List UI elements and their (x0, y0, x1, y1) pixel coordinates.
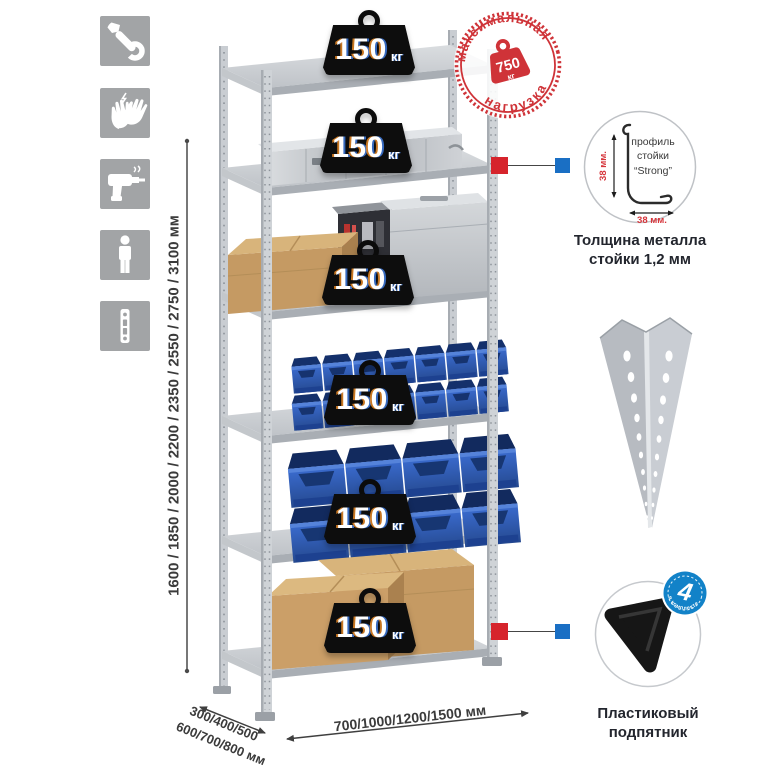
foot-caption: Пластиковый подпятник (582, 704, 714, 742)
shelf-load-badge: 150кг (324, 479, 416, 544)
blue-marker-square-bottom (555, 624, 570, 639)
shelf-load-badge: 150кг (320, 108, 412, 173)
rack-post-back-left (213, 46, 231, 694)
profile-dim-horizontal: 38 мм. (637, 215, 667, 224)
profile-label-2: стойки (637, 150, 669, 162)
profile-label-3: “Strong” (634, 165, 672, 177)
profile-caption: Толщина металла стойки 1,2 мм (565, 231, 715, 269)
product-infographic: { "sidebar": { "icons": [ {"id": "wrench… (0, 0, 765, 765)
shelf-load-badge: 150кг (322, 240, 414, 305)
connector-line-top (508, 165, 555, 166)
profile-dim-vertical: 38 мм. (598, 151, 609, 181)
shelf-load-badge: 150кг (324, 360, 416, 425)
profile-detail-circle: 38 мм. 38 мм. профиль стойки “Strong” (583, 110, 697, 224)
profile-label-1: профиль (631, 136, 675, 148)
shelf-load-badge: 150кг (324, 588, 416, 653)
height-dimension-label: 1600 / 1850 / 2000 / 2200 / 2350 / 2550 … (166, 126, 183, 686)
blue-marker-square-top (555, 158, 570, 173)
red-marker-square-bottom (491, 623, 508, 640)
angle-post-image (594, 312, 698, 534)
red-marker-square-top (491, 157, 508, 174)
shelf-load-badge: 150кг (323, 10, 415, 75)
foot-count-badge: 4 в комплекте (661, 569, 709, 617)
max-load-stamp: максимальная нагрузка 750 кг (452, 9, 564, 121)
height-dimension-line (185, 139, 189, 673)
connector-line-bottom (508, 631, 555, 632)
